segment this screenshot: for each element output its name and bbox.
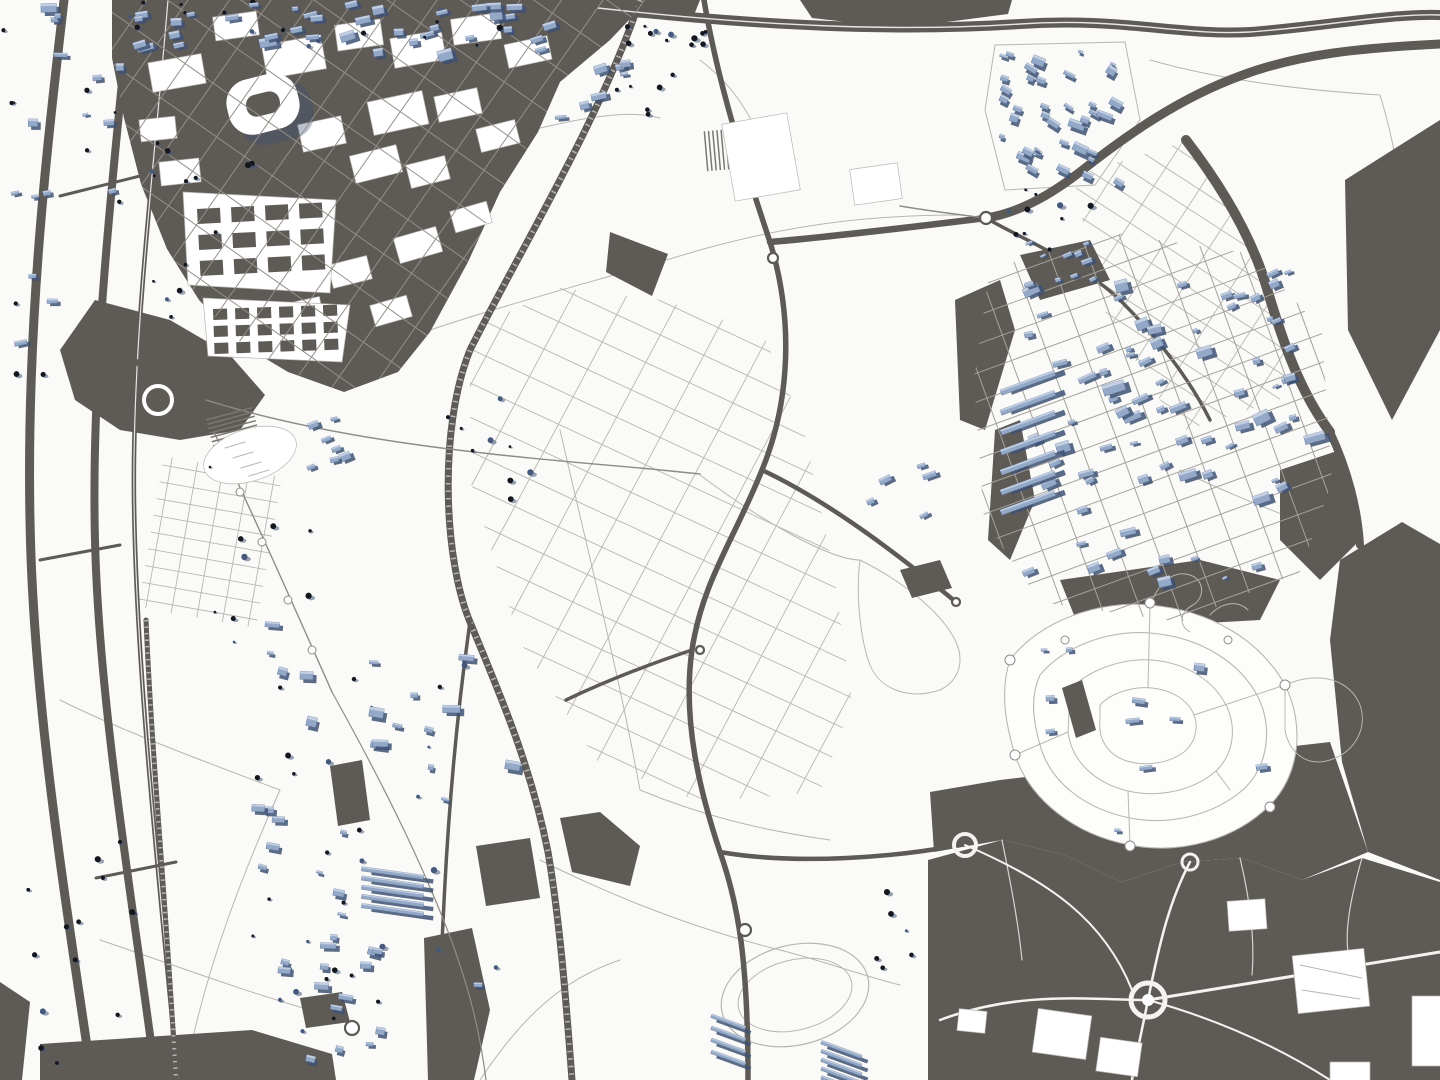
building: [919, 510, 932, 521]
building: [369, 660, 381, 667]
building: [922, 469, 941, 482]
junction-node: [980, 212, 992, 224]
tree-dot: [76, 919, 81, 924]
building: [458, 654, 477, 664]
tree-dot: [643, 25, 646, 28]
west-branch-road: [566, 650, 692, 700]
tree-dot: [1, 28, 5, 32]
river-bank-road: [30, 0, 92, 1080]
tree-dot: [184, 263, 188, 267]
building: [866, 497, 878, 508]
building: [999, 75, 1011, 86]
campus-block: [198, 234, 222, 250]
tree-dot: [155, 141, 159, 145]
tree-dot: [1057, 202, 1063, 208]
building: [1272, 383, 1282, 391]
cluster-terrace-rows: [361, 867, 434, 921]
tree-dot: [194, 176, 198, 180]
superblock-parcel: [1032, 1008, 1092, 1059]
tree-dot: [665, 39, 668, 42]
building: [93, 75, 105, 84]
parcel-line: [453, 33, 1182, 373]
grid-edge-band: [1186, 140, 1330, 432]
tree-dot: [32, 952, 37, 957]
building: [1062, 103, 1076, 115]
tree-dot: [689, 42, 694, 47]
tree-dot: [332, 1017, 336, 1021]
parcel-line: [21, 682, 341, 738]
building-roof-light: [366, 1042, 373, 1043]
campus-block: [302, 254, 326, 270]
tree-dot: [527, 469, 533, 475]
building: [1178, 467, 1202, 485]
tree-dot: [1024, 188, 1027, 191]
tree-dot: [308, 529, 311, 532]
tree-dot: [306, 940, 309, 943]
building: [28, 119, 41, 130]
tree-dot: [180, 3, 183, 6]
mini-roundabout: [1005, 655, 1015, 665]
tree-dot: [270, 523, 276, 529]
tree-dot: [625, 24, 630, 29]
bottom-access-road: [720, 846, 954, 859]
building: [878, 473, 896, 488]
tree-dot: [645, 107, 649, 111]
building: [300, 671, 317, 683]
building: [1024, 330, 1037, 341]
parcel-line: [27, 648, 347, 704]
building: [1227, 301, 1240, 313]
tree-dot: [905, 929, 908, 932]
tree-dot: [95, 856, 101, 862]
junction-node: [768, 253, 778, 263]
junction-node: [696, 646, 704, 654]
tree-dot: [141, 1, 145, 5]
tree-dot: [880, 965, 885, 970]
parcel-line: [282, 398, 1011, 738]
tree-dot: [497, 25, 503, 31]
building: [1130, 440, 1141, 447]
building: [1120, 526, 1141, 540]
tree-dot: [14, 371, 20, 377]
tree-dot: [700, 41, 706, 47]
campus-block: [268, 256, 292, 272]
tree-dot: [376, 1000, 380, 1004]
tree-dot: [1048, 247, 1052, 251]
building-roof-light: [474, 982, 483, 984]
campus-block: [302, 339, 316, 350]
tree-dot: [1013, 232, 1018, 237]
cluster-center-compound: [866, 462, 941, 522]
tree-dot: [255, 775, 260, 780]
building: [251, 804, 268, 815]
tree-dot: [251, 935, 254, 938]
superblock-parcel: [1227, 899, 1267, 932]
tree-dot: [10, 101, 14, 105]
field-line: [640, 790, 830, 840]
junction-node: [739, 924, 751, 936]
tree-dot: [471, 449, 474, 452]
tree-dot: [436, 948, 441, 953]
tree-dot: [165, 297, 169, 301]
building: [427, 764, 436, 774]
building-roof-light: [1115, 829, 1121, 830]
mini-roundabout: [1280, 680, 1290, 690]
parcel-line: [471, 185, 849, 896]
dark-patch: [476, 838, 540, 906]
parcel-line: [1081, 94, 1357, 519]
plaza-node: [284, 596, 292, 604]
tree-dot: [40, 1008, 46, 1014]
compound: [722, 113, 801, 201]
building: [1058, 139, 1071, 149]
building: [1078, 370, 1102, 387]
building: [1251, 561, 1266, 573]
tree-dot: [1034, 193, 1037, 196]
map-stage: [0, 0, 1440, 1080]
building: [1107, 97, 1126, 114]
trees-fields-bc: [874, 889, 916, 971]
building: [320, 942, 340, 951]
building: [1177, 280, 1191, 291]
campus-block: [280, 340, 294, 351]
tree-dot: [653, 29, 658, 34]
parcel-line: [513, 207, 891, 918]
tree-dot: [416, 795, 420, 799]
building: [47, 299, 61, 306]
tree-dot: [423, 36, 426, 39]
tree-dot: [874, 956, 879, 961]
hatch-line: [709, 131, 712, 171]
avenue-west: [770, 218, 986, 242]
building-roof-light: [300, 671, 313, 674]
tree-dot: [361, 31, 366, 36]
tree-dot: [169, 315, 173, 319]
campus-block: [231, 206, 255, 222]
parcel-line: [494, 119, 935, 748]
building: [1077, 50, 1085, 57]
tree-dot: [64, 924, 69, 929]
tree-dot: [267, 897, 270, 900]
tree-dot: [278, 685, 282, 689]
building: [340, 830, 350, 838]
tree-dot: [427, 746, 430, 749]
tree-dot: [305, 593, 311, 599]
tree-dot: [128, 15, 131, 18]
campus-block: [302, 322, 316, 333]
building: [1289, 414, 1300, 424]
tree-dot: [657, 85, 663, 91]
tree-dot: [292, 772, 296, 776]
building-roof-light: [41, 3, 57, 6]
building: [917, 462, 929, 471]
tree-dot: [165, 148, 171, 154]
building: [1076, 505, 1092, 518]
right-wedge: [1345, 120, 1440, 420]
building: [620, 72, 631, 79]
tree-dot: [670, 73, 674, 77]
building: [1024, 164, 1041, 179]
tree-dot: [1060, 217, 1063, 220]
tree-dot: [245, 162, 251, 168]
tree-dot: [494, 965, 498, 969]
building-roof-light: [1041, 649, 1047, 650]
tree-dot: [435, 20, 438, 23]
building: [337, 912, 348, 919]
tree-dot: [475, 44, 478, 47]
building: [1284, 269, 1294, 277]
tree-dot: [325, 977, 329, 981]
parcel-line: [736, 236, 955, 836]
tree-dot: [1006, 209, 1010, 213]
parcel-line: [24, 665, 344, 721]
tree-dot: [153, 174, 156, 177]
superblock-parcel: [1330, 1062, 1370, 1080]
campus-block: [299, 202, 323, 218]
tree-dot: [629, 85, 632, 88]
building: [360, 962, 374, 973]
mini-roundabout: [1224, 636, 1232, 644]
tree-dot: [26, 888, 30, 892]
tree-dot: [209, 466, 212, 469]
parcel-line: [308, 342, 1037, 682]
plaza-node: [236, 488, 244, 496]
mini-roundabout: [1061, 636, 1069, 644]
tree-dot: [241, 554, 247, 560]
building: [392, 723, 405, 732]
building: [334, 1045, 346, 1057]
building: [368, 707, 388, 723]
building: [1252, 490, 1276, 509]
dark-patch: [560, 812, 640, 886]
building-roof-light: [47, 299, 58, 300]
racetrack-outline: [710, 928, 880, 1061]
building: [1076, 540, 1089, 549]
parcel-line: [439, 61, 1168, 401]
building: [1201, 435, 1217, 447]
roundabout-town: [345, 1021, 359, 1035]
tree-dot: [101, 876, 105, 880]
building: [320, 963, 331, 973]
parcel-line: [913, 0, 1189, 410]
dark-patch: [330, 760, 370, 826]
tree-dot: [438, 685, 442, 689]
parcel-line: [32, 615, 352, 671]
roundabout-island: [1142, 994, 1154, 1006]
tree-dot: [498, 396, 503, 401]
tree-dot: [238, 536, 243, 541]
building-roof-light: [28, 119, 38, 121]
tree-dot: [285, 753, 291, 759]
tree-dot: [1088, 203, 1094, 209]
tree-dot: [648, 31, 653, 36]
building: [411, 693, 421, 701]
tree-dot: [38, 1045, 44, 1051]
building: [265, 622, 284, 632]
tree-dot: [326, 759, 331, 764]
mini-roundabout: [1145, 598, 1155, 608]
building: [1100, 443, 1117, 454]
building: [272, 816, 288, 826]
tree-dot: [222, 11, 226, 15]
plaza-node: [308, 646, 316, 654]
tree-dot: [300, 1029, 304, 1033]
campus-block: [258, 341, 272, 352]
tree-dot: [306, 44, 310, 48]
building: [1138, 355, 1156, 369]
dark-patch: [606, 232, 668, 296]
tree-dot: [233, 641, 236, 644]
tree-dot: [41, 372, 46, 377]
tree-dot: [114, 111, 117, 114]
tree-dot: [118, 840, 122, 844]
campus-block: [232, 232, 256, 248]
mini-roundabout: [1125, 841, 1135, 851]
building-roof-light: [1046, 695, 1054, 697]
building: [998, 134, 1007, 143]
hatch-line: [704, 131, 707, 171]
tree-dot: [115, 1013, 119, 1017]
building: [375, 1027, 388, 1039]
building: [1252, 407, 1276, 429]
building: [1104, 65, 1120, 81]
tree-dot: [1023, 232, 1026, 235]
tree-dot: [357, 828, 362, 833]
cluster-rows-bc2: [820, 1040, 869, 1080]
tree-dot: [84, 88, 89, 93]
building: [1112, 177, 1127, 191]
tree-dot: [700, 31, 705, 36]
parcel-line: [35, 598, 355, 654]
tree-dot: [117, 200, 121, 204]
plaza-node: [258, 538, 266, 546]
superblock-parcel: [957, 1009, 987, 1034]
tree-dot: [646, 112, 651, 117]
building: [316, 870, 325, 877]
superblock-parcel: [1096, 1037, 1142, 1077]
tree-dot: [359, 858, 364, 863]
parcel-line: [204, 567, 933, 907]
parcel-line: [322, 314, 1051, 654]
tree-dot: [184, 179, 188, 183]
tree-dot: [332, 967, 338, 973]
parcel-line: [361, 414, 417, 734]
parcel-line: [335, 286, 1064, 626]
tree-dot: [507, 478, 513, 484]
parcel-line: [256, 454, 985, 794]
building: [305, 716, 321, 732]
superblock-parcel: [1412, 996, 1440, 1066]
building-roof-light: [116, 63, 124, 65]
campus-block: [324, 339, 338, 350]
building: [1062, 70, 1078, 82]
building: [591, 91, 612, 105]
building: [276, 667, 291, 681]
building: [1233, 292, 1250, 302]
building: [1087, 102, 1098, 112]
tree-dot: [342, 901, 346, 905]
tree-dot: [250, 29, 254, 33]
cluster-village-tr: [997, 50, 1127, 192]
building: [332, 889, 348, 901]
building: [1202, 468, 1218, 482]
building: [366, 1042, 376, 1049]
tree-dot: [352, 677, 356, 681]
building: [1022, 566, 1039, 580]
tree-dot: [350, 973, 354, 977]
dev-dark-edge: [955, 280, 1015, 430]
tree-dot: [1024, 206, 1030, 212]
building: [331, 416, 341, 424]
building: [555, 115, 570, 122]
tree-dot: [214, 611, 217, 614]
superblock-parcel: [1292, 948, 1370, 1013]
tree-dot: [55, 1061, 59, 1065]
building: [11, 190, 22, 198]
tree-dot: [73, 957, 78, 962]
building: [321, 435, 335, 446]
building: [314, 982, 332, 993]
field-line: [480, 960, 620, 1080]
compound-small: [850, 163, 903, 205]
tree-dot: [691, 35, 697, 41]
hatch-line: [717, 130, 720, 170]
tree-dot: [626, 41, 632, 47]
building: [1250, 292, 1265, 306]
building: [1137, 473, 1153, 487]
campus-block: [236, 325, 250, 336]
building: [1106, 547, 1126, 563]
tree-dot: [183, 11, 186, 14]
tree-dot: [281, 28, 285, 32]
bottom-strip: [0, 982, 30, 1080]
campus-block: [214, 342, 228, 353]
building-roof-light: [394, 28, 404, 30]
campus-block: [300, 228, 324, 244]
tree-dot: [14, 301, 18, 305]
campus-block: [258, 324, 272, 335]
campus-block: [265, 204, 289, 220]
campus-block: [323, 305, 337, 316]
tree-dot: [488, 437, 494, 443]
building-roof-light: [443, 705, 461, 707]
building: [307, 419, 323, 432]
tree-dot: [135, 25, 140, 30]
building: [1156, 404, 1169, 415]
building: [423, 726, 436, 737]
field-line: [560, 430, 640, 790]
campus-block: [236, 342, 250, 353]
parcel-line: [466, 100, 907, 729]
tree-dot: [85, 148, 89, 152]
building: [1037, 310, 1052, 320]
tree-dot: [278, 998, 282, 1002]
junction-node: [952, 598, 960, 606]
tree-dot: [508, 496, 514, 502]
tree-dot: [149, 169, 153, 173]
tree-dot: [214, 230, 218, 234]
tree-dot: [152, 280, 155, 283]
tree-dot: [231, 616, 236, 621]
campus-block: [214, 326, 228, 337]
building: [1096, 341, 1114, 356]
campus-block: [197, 208, 221, 224]
building: [307, 463, 319, 473]
tree-dot: [615, 88, 619, 92]
tree-dot: [460, 427, 463, 430]
dark-patch: [424, 928, 490, 1080]
hatch-line: [713, 131, 716, 171]
